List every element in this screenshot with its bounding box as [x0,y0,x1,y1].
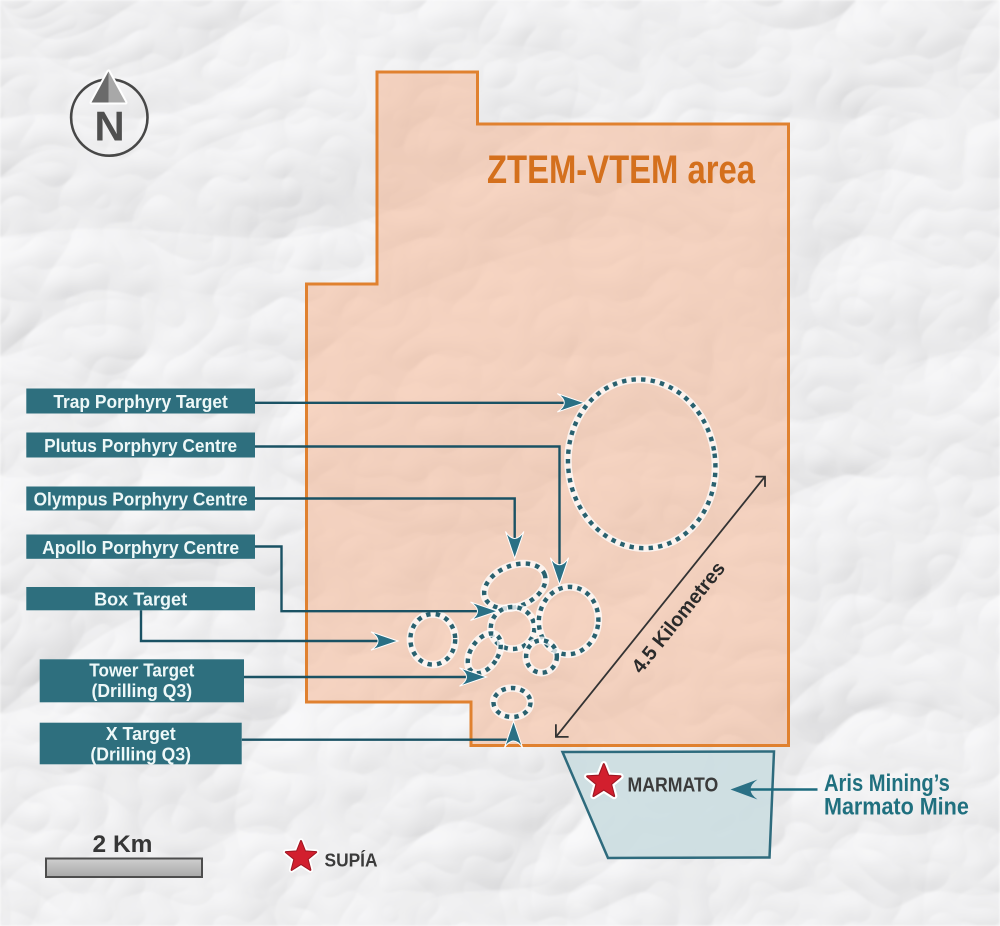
svg-text:Olympus Porphyry Centre: Olympus Porphyry Centre [34,489,248,510]
svg-text:Trap Porphyry Target: Trap Porphyry Target [53,391,228,412]
svg-text:(Drilling Q3): (Drilling Q3) [92,680,193,701]
svg-text:Plutus Porphyry Centre: Plutus Porphyry Centre [44,435,237,456]
svg-text:Marmato Mine: Marmato Mine [824,794,969,821]
svg-text:Apollo Porphyry Centre: Apollo Porphyry Centre [42,537,239,558]
svg-text:2 Km: 2 Km [93,831,153,858]
svg-text:(Drilling Q3): (Drilling Q3) [90,744,191,765]
svg-text:Box Target: Box Target [94,589,187,610]
svg-text:X Target: X Target [106,723,176,744]
svg-text:MARMATO: MARMATO [628,775,719,797]
svg-text:Tower Target: Tower Target [89,660,194,681]
svg-text:N: N [94,103,124,150]
svg-text:ZTEM-VTEM area: ZTEM-VTEM area [487,148,756,192]
svg-text:SUPÍA: SUPÍA [325,850,378,871]
